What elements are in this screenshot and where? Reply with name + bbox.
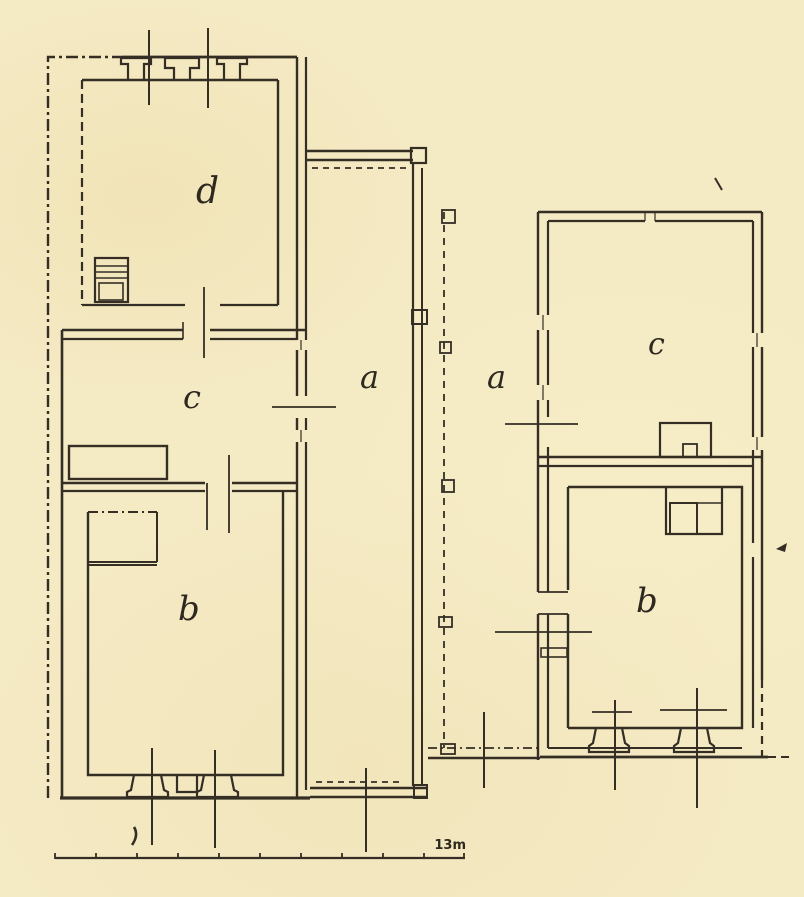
stove-icon [660, 423, 711, 457]
left-building [48, 28, 336, 848]
room-d [82, 80, 278, 358]
arrow-mark [776, 543, 787, 552]
scale-bar-label: 13m [434, 838, 466, 853]
room-c-left-label: c [183, 378, 201, 416]
courtyard-a-right-label: a [487, 358, 506, 396]
bottom-buttresses [127, 775, 238, 797]
room-b-left [88, 491, 283, 848]
room-c-right-label: c [648, 327, 665, 362]
scale-bar: 13m [55, 838, 466, 859]
stove-icon [95, 258, 128, 302]
room-b-right [495, 487, 742, 808]
room-b-right-label: b [636, 581, 658, 621]
boundary-line [48, 57, 122, 798]
floor-plan-scan: 13m d c b a a c b [0, 0, 804, 897]
stray-marks [132, 178, 787, 845]
apostrophe-mark [132, 827, 136, 845]
courtyard-colonnade [306, 148, 540, 852]
right-building [495, 212, 790, 808]
floor-plan-svg: 13m d c b a a c b [0, 0, 804, 897]
tick-mark [715, 178, 722, 190]
corner-stove-icon [666, 487, 722, 534]
colonnade-posts [439, 210, 455, 754]
window-axis-mark [592, 710, 727, 712]
room-b-left-label: b [178, 589, 200, 629]
top-piers [121, 58, 247, 80]
courtyard-a-left-label: a [360, 358, 379, 396]
alcove [69, 446, 167, 479]
room-d-label: d [196, 171, 219, 212]
door-jamb-marks [207, 455, 229, 533]
